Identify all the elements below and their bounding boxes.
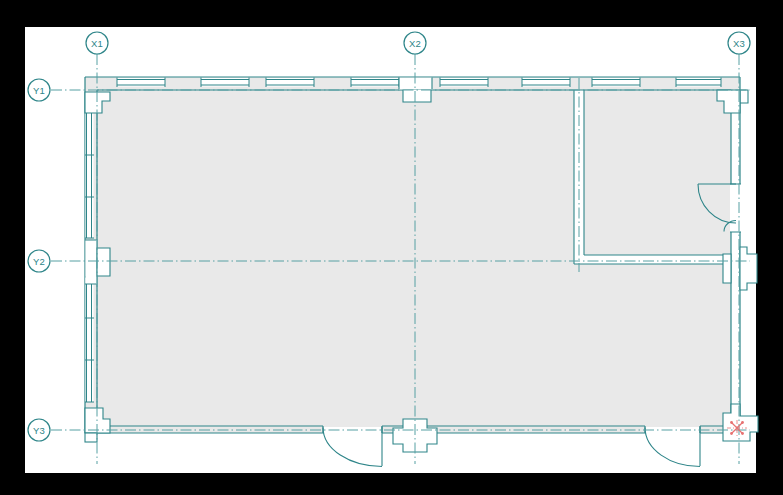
axis-label-y2: Y2 (33, 256, 45, 267)
axis-bubble-x2: X2 (404, 32, 426, 54)
floor-plan-svg: X1 X2 X3 Y1 Y2 Y3 (0, 0, 783, 495)
axis-bubble-y1: Y1 (28, 79, 50, 101)
column-top-right-outer (740, 90, 748, 103)
axis-label-x2: X2 (409, 38, 421, 49)
axis-label-y1: Y1 (33, 85, 45, 96)
column-right-y2 (723, 247, 757, 290)
cad-floor-plan-screenshot: X1 X2 X3 Y1 Y2 Y3 (0, 0, 783, 495)
axis-label-y3: Y3 (33, 425, 45, 436)
axis-bubble-x1: X1 (86, 32, 108, 54)
axis-bubble-x3: X3 (728, 32, 750, 54)
axis-label-x1: X1 (91, 38, 103, 49)
axis-bubble-y3: Y3 (28, 419, 50, 441)
axis-label-x3: X3 (733, 38, 745, 49)
axis-bubble-y2: Y2 (28, 250, 50, 272)
